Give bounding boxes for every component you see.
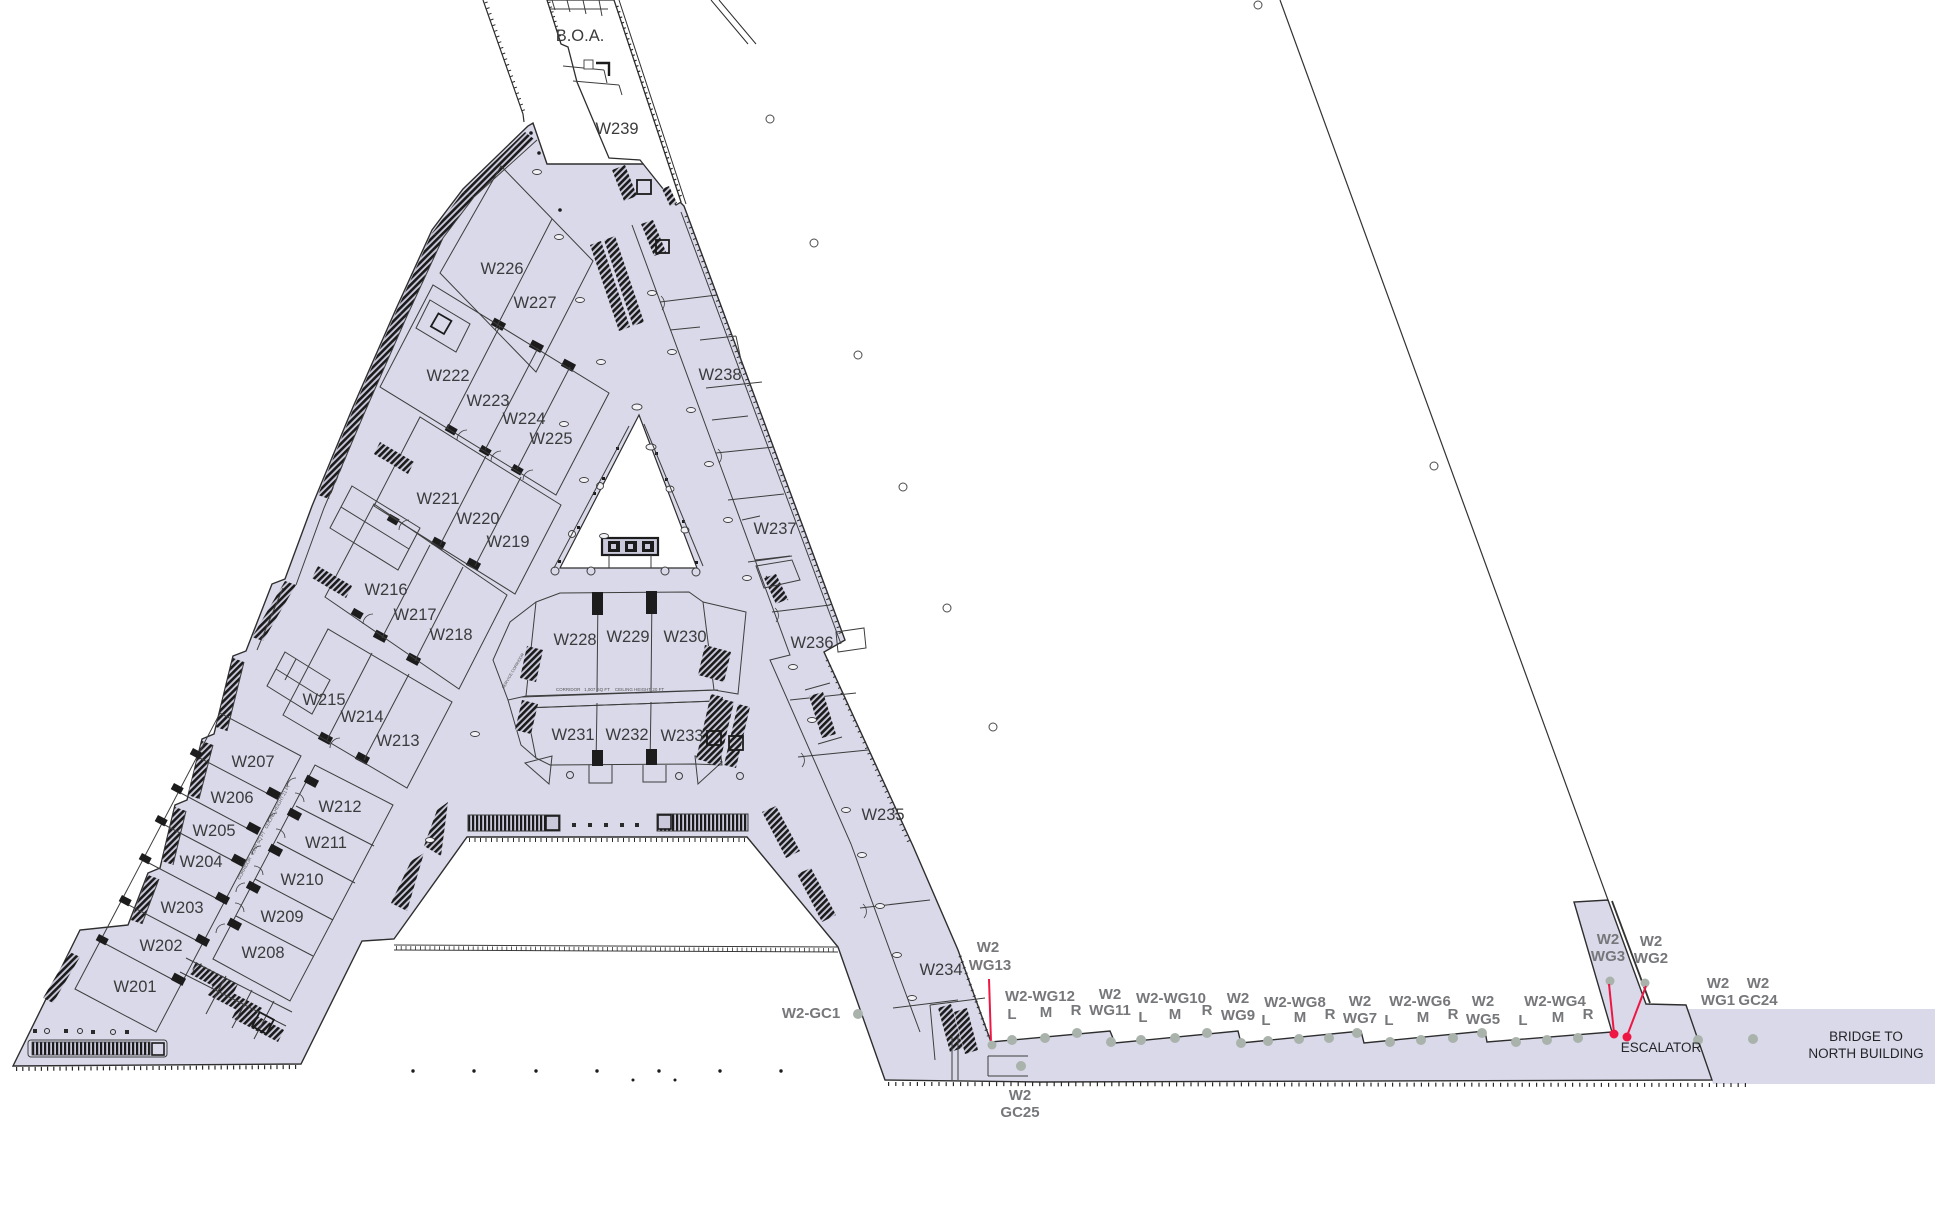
- svg-text:W2: W2: [1349, 993, 1372, 1010]
- svg-text:W2: W2: [1707, 975, 1730, 992]
- svg-text:W234: W234: [919, 961, 962, 979]
- svg-text:W204: W204: [179, 853, 222, 871]
- svg-text:M: M: [1294, 1009, 1307, 1026]
- svg-text:WG5: WG5: [1466, 1011, 1500, 1028]
- svg-text:GC25: GC25: [1000, 1104, 1039, 1121]
- svg-text:WG1: WG1: [1701, 992, 1735, 1009]
- svg-text:W2-WG6: W2-WG6: [1389, 993, 1451, 1010]
- svg-text:ESCALATOR: ESCALATOR: [1621, 1040, 1702, 1055]
- svg-text:W228: W228: [553, 631, 596, 649]
- svg-text:W2-GC1: W2-GC1: [782, 1005, 840, 1022]
- svg-text:W221: W221: [416, 490, 459, 508]
- svg-text:W219: W219: [486, 533, 529, 551]
- svg-text:R: R: [1448, 1006, 1459, 1023]
- svg-text:W206: W206: [210, 789, 253, 807]
- svg-text:W203: W203: [160, 899, 203, 917]
- svg-text:W232: W232: [605, 726, 648, 744]
- svg-text:W225: W225: [529, 430, 572, 448]
- svg-text:W2: W2: [1227, 990, 1250, 1007]
- svg-text:M: M: [1417, 1009, 1430, 1026]
- svg-text:W215: W215: [302, 691, 345, 709]
- svg-text:WG3: WG3: [1591, 948, 1625, 965]
- svg-text:W230: W230: [663, 628, 706, 646]
- svg-text:W2: W2: [1472, 993, 1495, 1010]
- svg-text:W211: W211: [305, 834, 347, 852]
- svg-text:L: L: [1007, 1006, 1016, 1023]
- svg-text:WG2: WG2: [1634, 950, 1668, 967]
- svg-text:W236: W236: [790, 634, 833, 652]
- svg-text:W239: W239: [595, 120, 638, 138]
- svg-text:W238: W238: [698, 366, 741, 384]
- svg-text:W2: W2: [1747, 975, 1770, 992]
- svg-text:W202: W202: [139, 937, 182, 955]
- svg-text:M: M: [1040, 1004, 1053, 1021]
- svg-text:W237: W237: [753, 520, 796, 538]
- svg-text:W224: W224: [502, 410, 545, 428]
- svg-text:W231: W231: [551, 726, 594, 744]
- svg-text:WG7: WG7: [1343, 1010, 1377, 1027]
- svg-text:W201: W201: [113, 978, 156, 996]
- svg-text:W220: W220: [456, 510, 499, 528]
- svg-text:W2: W2: [1009, 1087, 1032, 1104]
- svg-text:W235: W235: [861, 806, 904, 824]
- svg-text:GC24: GC24: [1738, 992, 1778, 1009]
- svg-text:W2: W2: [1640, 933, 1663, 950]
- svg-text:W2: W2: [977, 939, 1000, 956]
- svg-text:L: L: [1138, 1009, 1147, 1026]
- svg-text:B.O.A.: B.O.A.: [556, 27, 605, 45]
- svg-text:W2: W2: [1099, 986, 1122, 1003]
- svg-text:W2-WG4: W2-WG4: [1524, 993, 1586, 1010]
- svg-text:W213: W213: [376, 732, 419, 750]
- svg-text:W210: W210: [280, 871, 323, 889]
- svg-text:R: R: [1071, 1002, 1082, 1019]
- svg-text:WG13: WG13: [969, 957, 1012, 974]
- svg-text:CORRIDOR 1,007 SQ FT CEIL: CORRIDOR 1,007 SQ FT CEILING HEIGHT 20 F…: [556, 687, 664, 692]
- svg-text:W2: W2: [1597, 931, 1620, 948]
- svg-text:W226: W226: [480, 260, 523, 278]
- svg-text:W212: W212: [318, 798, 361, 816]
- svg-text:WG9: WG9: [1221, 1007, 1255, 1024]
- svg-text:W209: W209: [260, 908, 303, 926]
- svg-text:L: L: [1384, 1012, 1393, 1029]
- svg-text:W2-WG10: W2-WG10: [1136, 990, 1206, 1007]
- svg-text:R: R: [1325, 1006, 1336, 1023]
- svg-text:NORTH BUILDING: NORTH BUILDING: [1808, 1046, 1923, 1061]
- svg-text:W233: W233: [660, 727, 703, 745]
- svg-text:W227: W227: [513, 294, 556, 312]
- svg-text:W223: W223: [466, 392, 509, 410]
- svg-text:W218: W218: [429, 626, 472, 644]
- svg-text:R: R: [1583, 1006, 1594, 1023]
- svg-text:W217: W217: [393, 606, 436, 624]
- svg-text:M: M: [1169, 1006, 1182, 1023]
- svg-text:W208: W208: [241, 944, 284, 962]
- svg-text:W214: W214: [340, 708, 383, 726]
- svg-text:W2-WG12: W2-WG12: [1005, 988, 1075, 1005]
- svg-text:W216: W216: [364, 581, 407, 599]
- svg-text:R: R: [1202, 1002, 1213, 1019]
- svg-text:BRIDGE TO: BRIDGE TO: [1829, 1029, 1903, 1044]
- svg-text:L: L: [1518, 1012, 1527, 1029]
- svg-text:M: M: [1552, 1009, 1565, 1026]
- svg-text:W222: W222: [426, 367, 469, 385]
- svg-text:W205: W205: [192, 822, 235, 840]
- svg-text:WG11: WG11: [1089, 1002, 1131, 1019]
- svg-text:L: L: [1261, 1012, 1270, 1029]
- svg-text:W229: W229: [606, 628, 649, 646]
- svg-text:W207: W207: [231, 753, 274, 771]
